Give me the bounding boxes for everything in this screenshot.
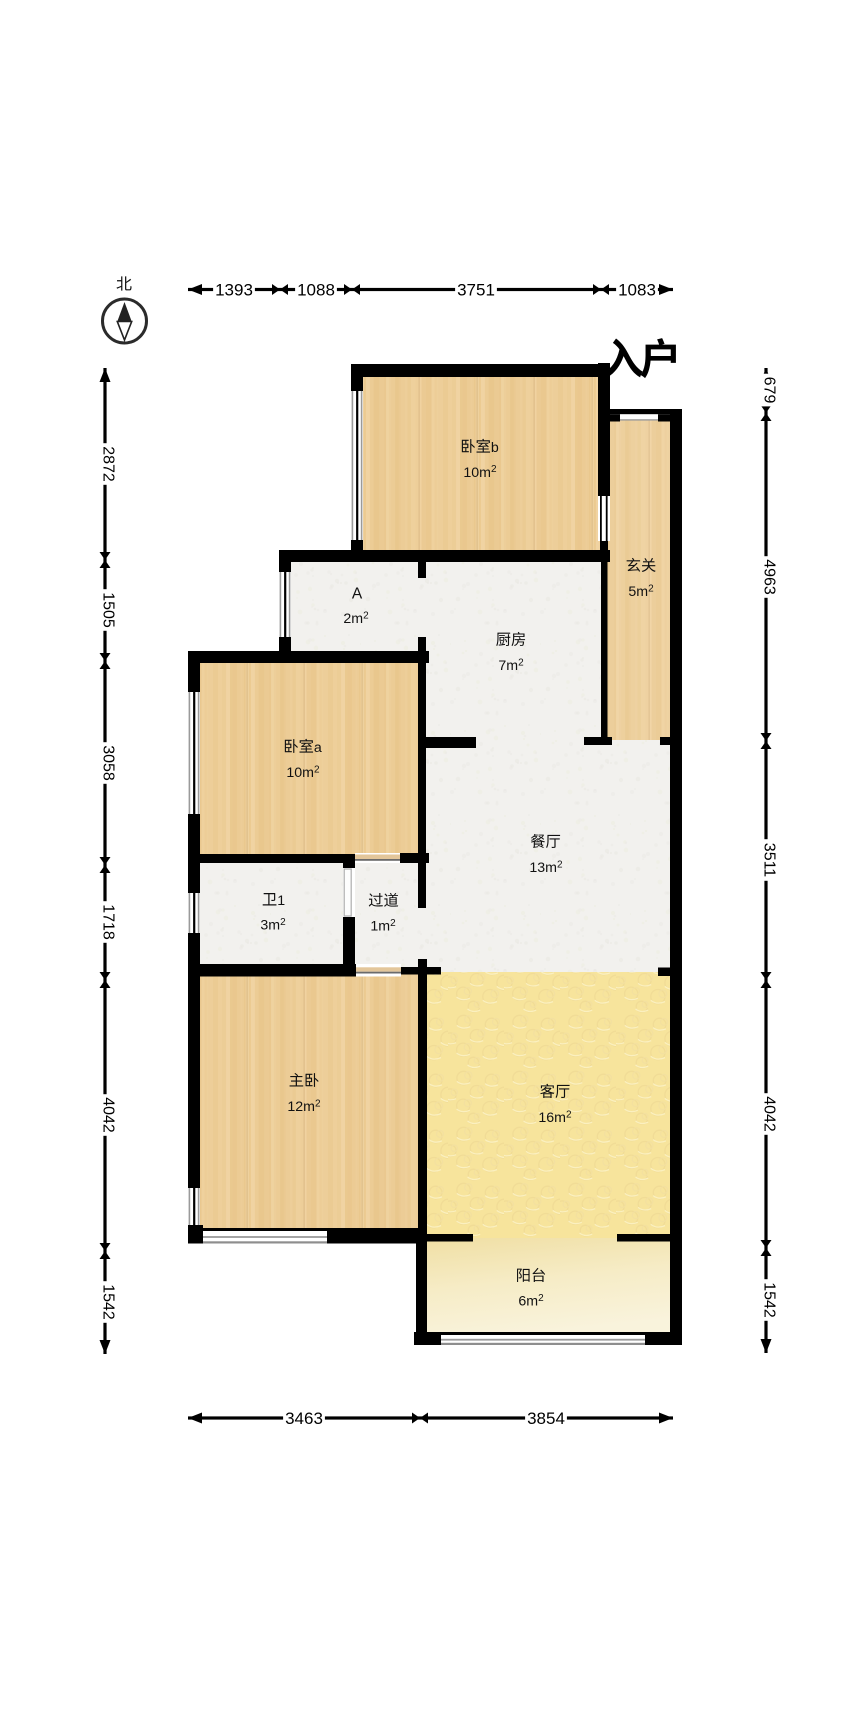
svg-text:3751: 3751 xyxy=(457,281,495,300)
svg-text:3058: 3058 xyxy=(100,745,117,781)
svg-text:a: a xyxy=(314,740,322,756)
svg-text:1718: 1718 xyxy=(100,904,117,940)
svg-text:2872: 2872 xyxy=(100,446,117,482)
svg-text:1542: 1542 xyxy=(761,1282,778,1318)
svg-text:679: 679 xyxy=(761,377,778,404)
svg-text:1393: 1393 xyxy=(215,281,253,300)
svg-text:1505: 1505 xyxy=(100,592,117,628)
svg-text:1083: 1083 xyxy=(618,281,656,300)
svg-text:4963: 4963 xyxy=(761,559,778,595)
svg-text:A: A xyxy=(352,585,363,602)
svg-text:3463: 3463 xyxy=(285,1409,323,1428)
svg-text:1542: 1542 xyxy=(100,1284,117,1320)
svg-text:3854: 3854 xyxy=(527,1409,565,1428)
svg-text:4042: 4042 xyxy=(761,1096,778,1132)
svg-text:1088: 1088 xyxy=(297,281,335,300)
svg-text:3511: 3511 xyxy=(761,843,778,878)
svg-text:b: b xyxy=(491,440,499,456)
svg-text:1: 1 xyxy=(277,893,285,909)
svg-text:4042: 4042 xyxy=(100,1097,117,1133)
